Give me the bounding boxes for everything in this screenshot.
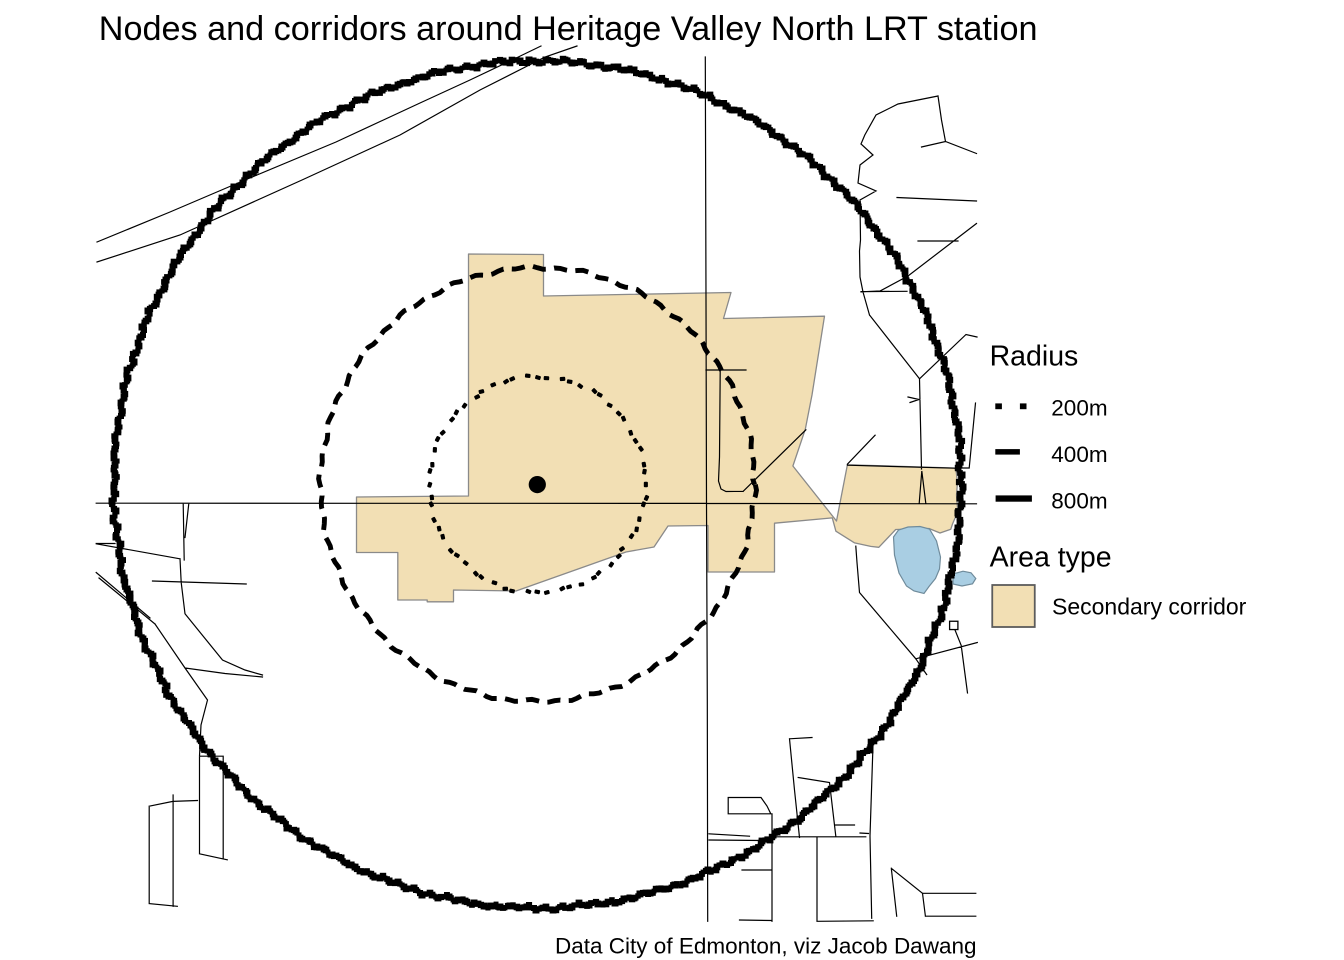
svg-text:800m: 800m — [1051, 489, 1107, 514]
svg-text:Radius: Radius — [990, 341, 1079, 373]
svg-text:Secondary corridor: Secondary corridor — [1052, 594, 1247, 620]
svg-text:200m: 200m — [1051, 396, 1107, 421]
svg-text:Data City of Edmonton, viz Jac: Data City of Edmonton, viz Jacob Dawang — [555, 934, 976, 959]
svg-text:Area type: Area type — [990, 541, 1112, 573]
svg-text:Nodes and corridors around Her: Nodes and corridors around Heritage Vall… — [99, 10, 1038, 48]
svg-text:400m: 400m — [1051, 442, 1107, 467]
